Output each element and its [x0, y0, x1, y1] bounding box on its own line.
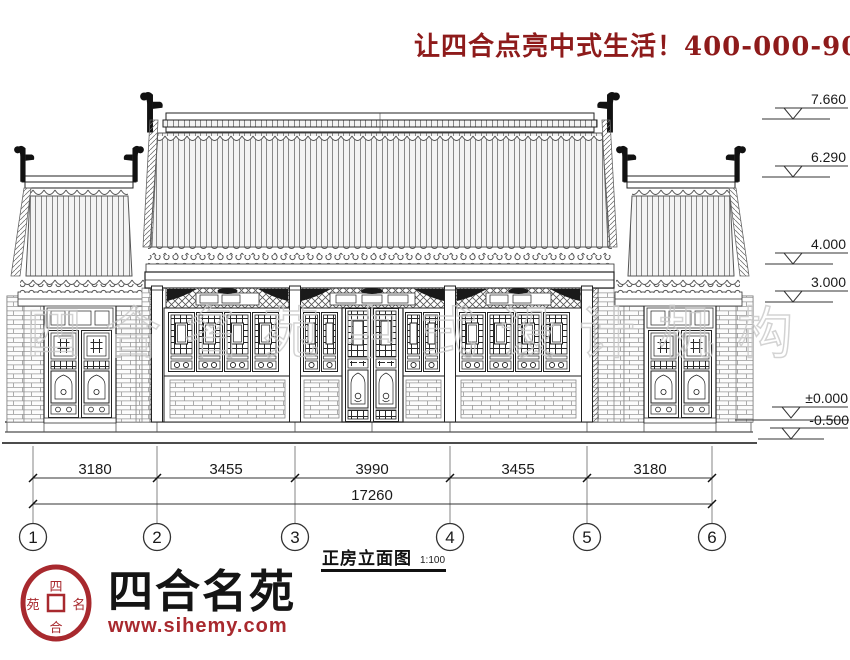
column-3: [288, 286, 302, 422]
stylobate: [2, 422, 757, 443]
main-roof: [140, 92, 620, 273]
caption-title: 正房立面图: [322, 548, 412, 569]
dim-label: 3180: [78, 461, 111, 478]
main-hall: [140, 92, 620, 422]
dim-label: 3990: [355, 461, 388, 478]
window-bay-right: [455, 308, 582, 422]
dim-label: 3455: [209, 461, 242, 478]
elevation-label: ±0.000: [805, 390, 848, 406]
transom-band-right: [456, 288, 581, 308]
axis-number: 5: [582, 528, 591, 547]
elevation-marker: 4.000: [765, 236, 848, 264]
column-2: [150, 286, 164, 422]
axis-number: 1: [28, 528, 37, 547]
axis-bubble: 6: [699, 524, 726, 551]
elevation-marker: -0.500: [758, 412, 849, 439]
seal-char-bottom: 合: [49, 621, 62, 636]
grid-axes: 1 2 3 4 5 6: [20, 524, 726, 551]
logo-seal: 四 合 名 苑: [16, 560, 96, 646]
transom-band-left: [166, 288, 289, 308]
dimension-lines: 3180 3455 3990 3455 3180 17260: [29, 446, 716, 523]
seal-char-right: 名: [72, 597, 85, 613]
dim-label: 3455: [501, 461, 534, 478]
blueprint-page: 让四合点亮中式生活！400-000-9075: [0, 0, 850, 660]
logo-name: 四合名苑: [108, 569, 296, 614]
elevation-marker: 7.660: [762, 91, 848, 119]
elevation-label: 7.660: [811, 91, 846, 107]
logo: 四 合 名 苑 四合名苑 www.sihemy.com: [16, 560, 296, 646]
transom-band-center: [300, 288, 445, 308]
elevation-marker: 6.290: [762, 149, 848, 177]
axis-bubble: 2: [144, 524, 171, 551]
elevation-label: -0.500: [809, 412, 849, 428]
elevation-marker: 3.000: [765, 274, 848, 302]
right-wing-gate: [612, 146, 753, 423]
axis-bubble: 1: [20, 524, 47, 551]
elevation-label: 4.000: [811, 236, 846, 252]
elevation-label: 6.290: [811, 149, 846, 165]
caption-scale: 1:100: [420, 555, 445, 566]
elevation-label: 3.000: [811, 274, 846, 290]
axis-number: 6: [707, 528, 716, 547]
left-wing-gate: [7, 146, 148, 423]
seal-char-left: 苑: [26, 598, 39, 613]
axis-number: 2: [152, 528, 161, 547]
dim-label: 3180: [633, 461, 666, 478]
logo-url: www.sihemy.com: [108, 615, 296, 638]
caption-underline: [321, 569, 446, 572]
window-bay-left: [164, 308, 291, 422]
axis-bubble: 5: [574, 524, 601, 551]
door-bay-center: [300, 308, 445, 422]
dim-total-label: 17260: [351, 487, 393, 504]
axis-number: 4: [445, 528, 454, 547]
axis-number: 3: [290, 528, 299, 547]
seal-char-top: 四: [49, 580, 62, 595]
axis-bubble: 3: [282, 524, 309, 551]
column-4: [443, 286, 457, 422]
caption: 正房立面图 1:100: [321, 548, 446, 572]
axis-bubble: 4: [437, 524, 464, 551]
column-5: [580, 286, 594, 422]
